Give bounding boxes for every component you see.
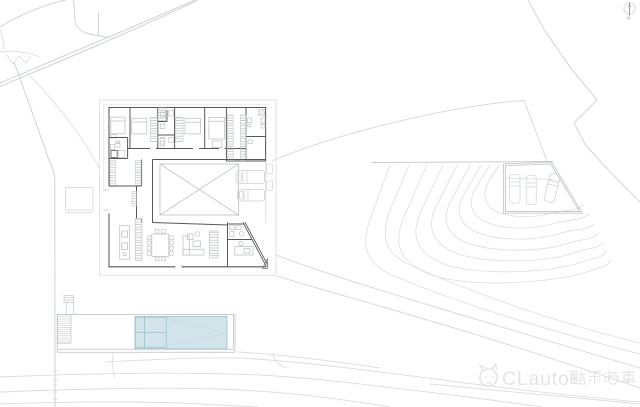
svg-text:N: N xyxy=(627,16,630,21)
svg-text:CLauto: CLauto xyxy=(502,368,570,390)
